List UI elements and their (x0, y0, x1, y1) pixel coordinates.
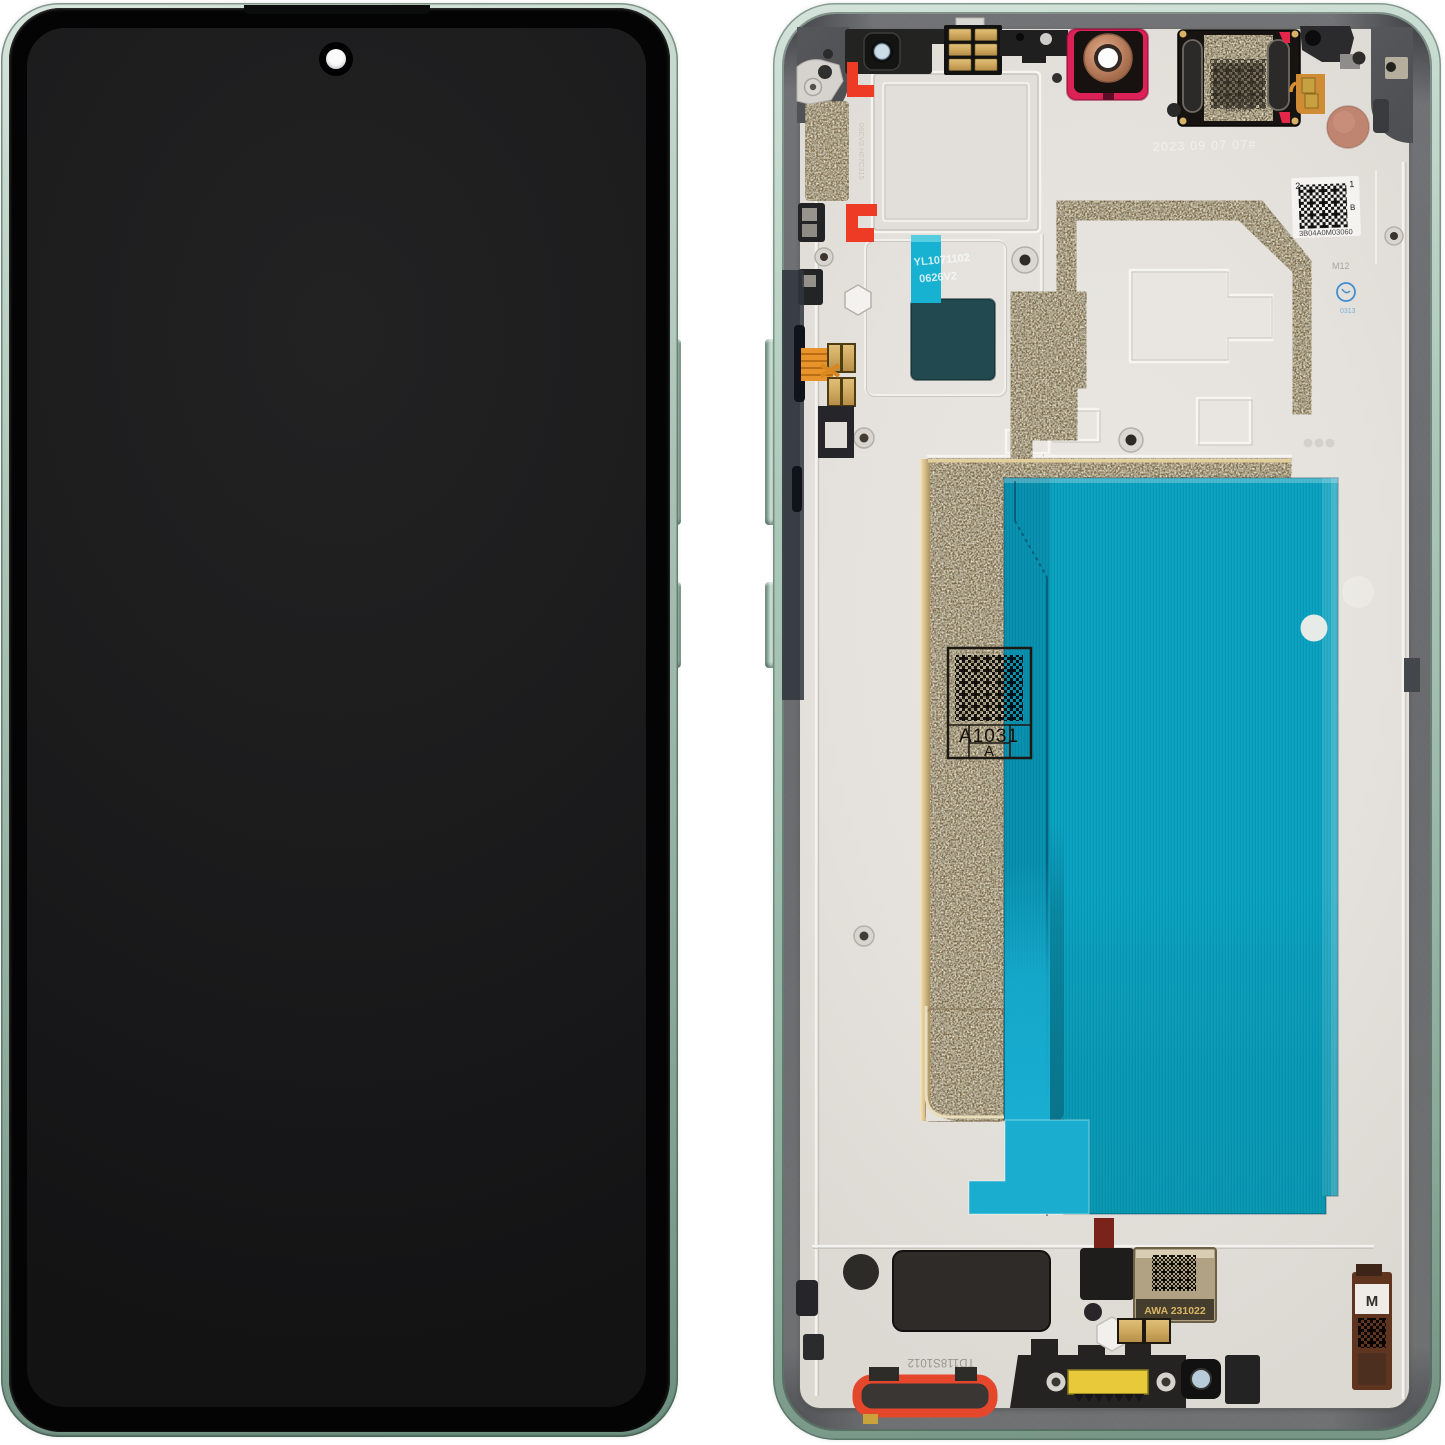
svg-text:TD118S1012: TD118S1012 (908, 1356, 975, 1368)
svg-text:2: 2 (1295, 181, 1300, 191)
svg-text:A: A (984, 743, 994, 760)
svg-text:06CV3 H07C315: 06CV3 H07C315 (857, 123, 866, 180)
svg-text:0313: 0313 (1340, 308, 1356, 315)
svg-text:1: 1 (1349, 179, 1354, 189)
svg-text:AWA 231022: AWA 231022 (1144, 1305, 1206, 1317)
svg-text:0626V2: 0626V2 (919, 270, 958, 285)
svg-text:B: B (1350, 203, 1356, 212)
svg-text:032SF1: 032SF1 (1223, 94, 1255, 104)
svg-text:2023 09 07 07#: 2023 09 07 07# (1153, 137, 1257, 154)
svg-text:3B04A0M03060: 3B04A0M03060 (1299, 227, 1353, 238)
svg-text:M12: M12 (1332, 261, 1350, 271)
svg-text:M: M (1366, 1293, 1379, 1310)
